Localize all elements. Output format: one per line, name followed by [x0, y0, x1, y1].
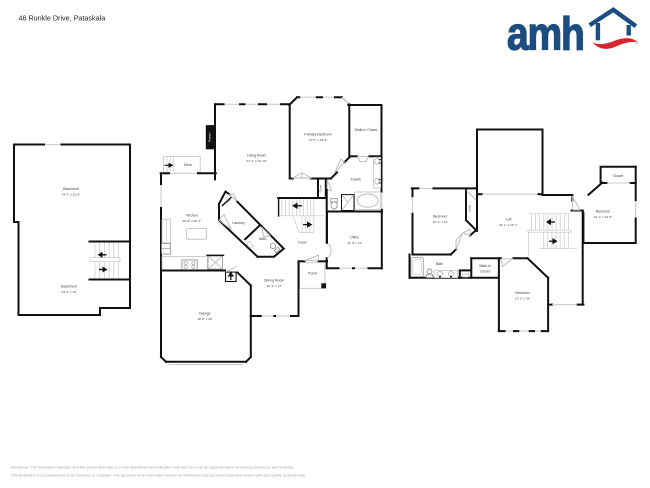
svg-text:Office: Office — [350, 236, 359, 240]
svg-text:20' 8" x 20' 4": 20' 8" x 20' 4" — [183, 219, 202, 223]
svg-text:12' 4" x 14': 12' 4" x 14' — [267, 284, 282, 288]
svg-text:Bedroom: Bedroom — [515, 291, 529, 295]
svg-text:13' 1" x 12' 5": 13' 1" x 12' 5" — [594, 215, 613, 219]
svg-text:Garage: Garage — [199, 312, 211, 316]
svg-text:12' 4" x 14': 12' 4" x 14' — [433, 220, 448, 224]
svg-text:amh: amh — [507, 9, 584, 61]
svg-text:Closet: Closet — [319, 185, 323, 193]
svg-text:Bath: Bath — [436, 262, 443, 266]
svg-text:Primary Bedroom: Primary Bedroom — [304, 133, 331, 137]
svg-text:Living Room: Living Room — [247, 154, 267, 158]
svg-text:Closet: Closet — [468, 205, 472, 213]
svg-text:Laundry: Laundry — [232, 221, 245, 225]
svg-text:Loft: Loft — [506, 218, 512, 222]
svg-text:11' 9" x 12': 11' 9" x 12' — [347, 241, 362, 245]
svg-text:Bath: Bath — [259, 237, 266, 241]
svg-text:24' 3" x 23' 8": 24' 3" x 23' 8" — [62, 193, 81, 197]
svg-text:12' 5" x 16' 9": 12' 5" x 16' 9" — [309, 138, 328, 142]
svg-text:Closet: Closet — [613, 174, 623, 178]
svg-text:Walk-In: Walk-In — [479, 264, 491, 268]
svg-text:Porch: Porch — [308, 272, 317, 276]
svg-text:23' 2" x 15': 23' 2" x 15' — [61, 290, 76, 294]
svg-text:Dining Room: Dining Room — [264, 279, 284, 283]
svg-text:Walk-In Closet: Walk-In Closet — [355, 128, 378, 132]
svg-text:21' 4" x 24' 10": 21' 4" x 24' 10" — [246, 159, 266, 163]
svg-text:Bedroom: Bedroom — [596, 210, 610, 214]
svg-text:Basement: Basement — [63, 187, 79, 191]
svg-text:Foyer: Foyer — [298, 241, 308, 245]
svg-text:Disclaimer: The floorplans dep: Disclaimer: The floorplans depicted and … — [11, 464, 295, 469]
svg-text:TM: TM — [635, 42, 639, 46]
svg-text:21' 1" x 12' 1": 21' 1" x 12' 1" — [499, 223, 518, 227]
svg-text:18' 8" x 18': 18' 8" x 18' — [197, 317, 212, 321]
svg-text:Bedroom: Bedroom — [433, 215, 447, 219]
svg-text:10' 1" x 15': 10' 1" x 15' — [515, 297, 530, 301]
svg-text:Deck: Deck — [184, 163, 192, 167]
svg-text:F.Bath: F.Bath — [351, 177, 361, 181]
svg-text:This illustration is not guara: This illustration is not guaranteed to b… — [11, 473, 307, 477]
svg-text:Basement: Basement — [61, 285, 77, 289]
svg-text:Closet: Closet — [480, 269, 490, 273]
svg-text:Fireplace: Fireplace — [208, 132, 211, 142]
svg-text:Kitchen: Kitchen — [186, 214, 198, 218]
svg-text:46 Runkle Drive, Pataskala: 46 Runkle Drive, Pataskala — [19, 13, 106, 22]
